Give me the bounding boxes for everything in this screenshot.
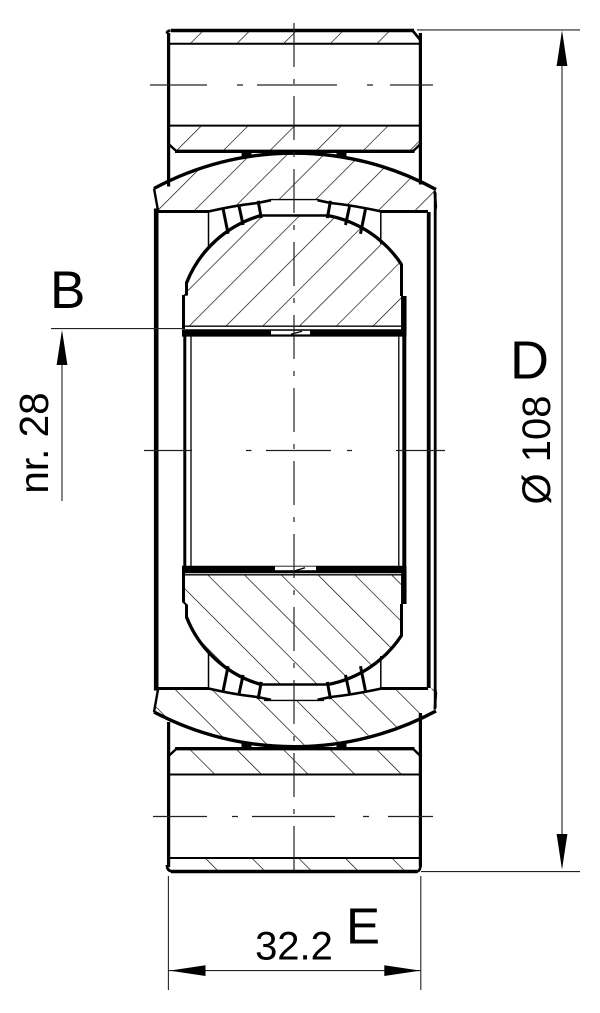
svg-text:Ø 108: Ø 108	[515, 396, 559, 505]
svg-text:32.2: 32.2	[255, 925, 333, 969]
svg-text:nr. 28: nr. 28	[11, 392, 57, 493]
svg-text:B: B	[50, 261, 85, 320]
svg-text:E: E	[346, 898, 380, 955]
svg-text:D: D	[510, 331, 549, 391]
